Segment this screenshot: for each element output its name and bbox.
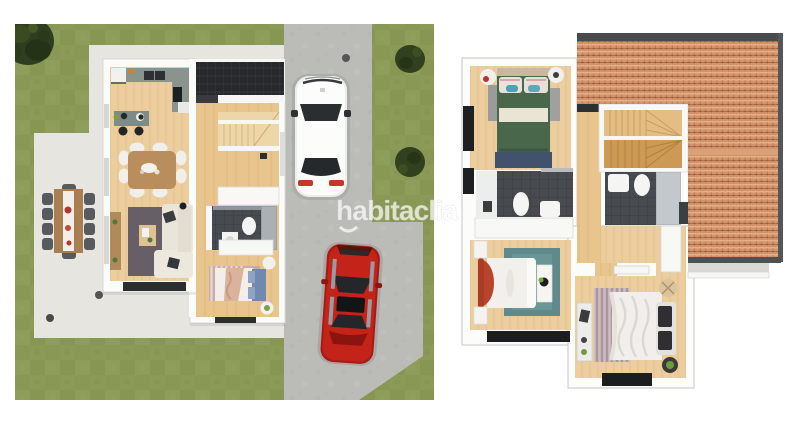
svg-text:habitaclia: habitaclia [336,195,458,226]
